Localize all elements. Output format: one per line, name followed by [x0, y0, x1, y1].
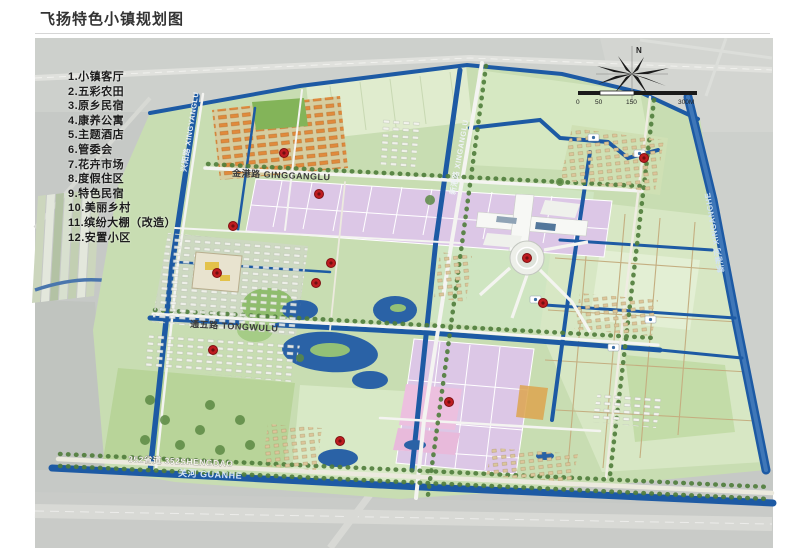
scale-bar: 0 50 150 300M — [576, 91, 697, 106]
scale-tick-0: 0 — [576, 99, 580, 106]
map-legend: 1.小镇客厅2.五彩农田3.原乡民宿4.康养公寓5.主题酒店6.管委会7.花卉市… — [68, 70, 176, 245]
legend-item: 10.美丽乡村 — [68, 201, 176, 216]
legend-item: 2.五彩农田 — [68, 85, 176, 100]
poi-marker-center — [314, 281, 317, 284]
poi-marker-center — [329, 261, 332, 264]
poi-marker-center — [338, 439, 341, 442]
page-header: 飞扬特色小镇规划图 — [35, 0, 770, 34]
page-title: 飞扬特色小镇规划图 — [35, 0, 770, 29]
poi-marker-center — [541, 301, 544, 304]
legend-item: 11.缤纷大棚（改造） — [68, 216, 176, 231]
poi-marker-center — [317, 192, 320, 195]
poi-marker-center — [211, 348, 214, 351]
scale-tick-300m: 300M — [678, 99, 694, 106]
poi-marker-center — [447, 400, 450, 403]
legend-item: 5.主题酒店 — [68, 128, 176, 143]
legend-item: 12.安置小区 — [68, 231, 176, 246]
legend-item: 7.花卉市场 — [68, 158, 176, 173]
scale-tick-150: 150 — [626, 99, 637, 106]
legend-item: 6.管委会 — [68, 143, 176, 158]
legend-item: 9.特色民宿 — [68, 187, 176, 202]
scale-tick-50: 50 — [595, 99, 603, 106]
poi-marker-center — [282, 151, 285, 154]
legend-item: 8.度假住区 — [68, 172, 176, 187]
poi-marker-center — [215, 271, 218, 274]
poi-marker-center — [525, 256, 528, 259]
poi-marker-center — [642, 156, 645, 159]
legend-item: 3.原乡民宿 — [68, 99, 176, 114]
legend-item: 1.小镇客厅 — [68, 70, 176, 85]
poi-marker-center — [231, 224, 234, 227]
legend-item: 4.康养公寓 — [68, 114, 176, 129]
compass-north-label: N — [636, 46, 642, 55]
